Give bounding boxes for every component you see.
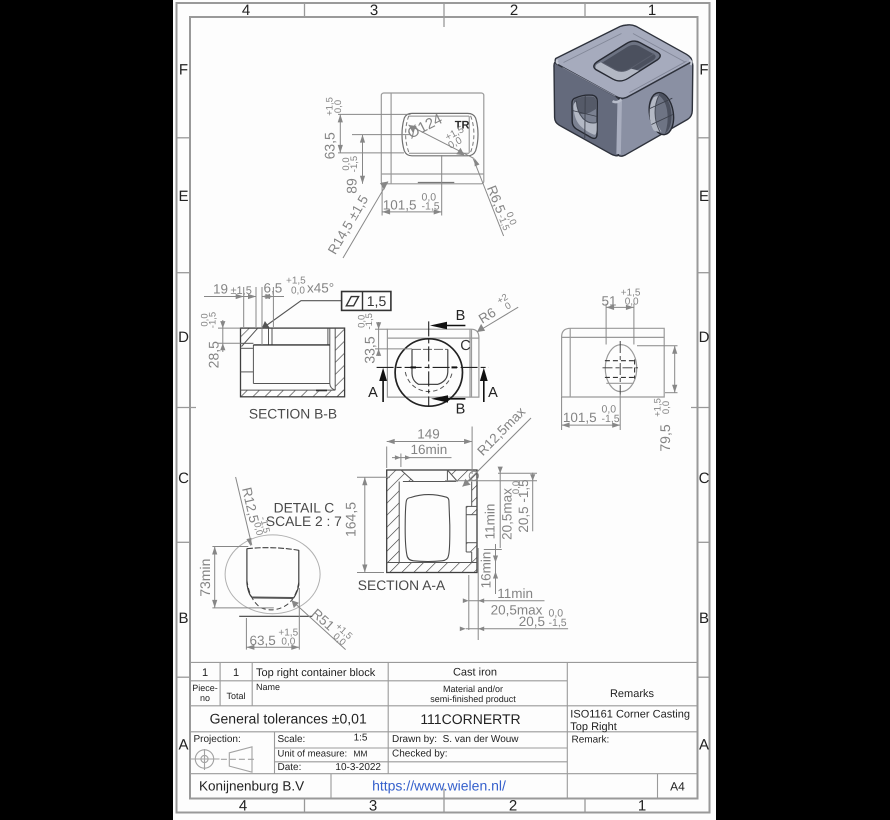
- svg-text:MM: MM: [353, 749, 367, 759]
- svg-text:16min: 16min: [479, 552, 494, 589]
- svg-text:2: 2: [510, 2, 518, 19]
- svg-text:Top right container block: Top right container block: [256, 667, 376, 679]
- svg-text:Scale:: Scale:: [278, 734, 306, 745]
- svg-text:111CORNERTR: 111CORNERTR: [420, 711, 520, 727]
- svg-text:Cast iron: Cast iron: [453, 667, 497, 679]
- svg-text:B: B: [699, 610, 709, 627]
- svg-text:Date:: Date:: [278, 762, 302, 773]
- svg-text:28,5: 28,5: [206, 341, 222, 368]
- svg-text:0,0: 0,0: [422, 191, 437, 203]
- svg-text:D: D: [699, 329, 710, 346]
- svg-text:https://www.wielen.nl/: https://www.wielen.nl/: [372, 778, 506, 794]
- svg-text:A: A: [699, 737, 709, 754]
- svg-text:SECTION A-A: SECTION A-A: [358, 578, 446, 593]
- svg-text:F: F: [179, 62, 188, 79]
- svg-text:Drawn by: S. van der Wouw: Drawn by: S. van der Wouw: [392, 734, 519, 745]
- svg-text:SECTION B-B: SECTION B-B: [249, 407, 337, 422]
- svg-text:E: E: [178, 188, 188, 205]
- svg-text:A: A: [368, 385, 378, 401]
- svg-text:1,5: 1,5: [367, 293, 387, 309]
- svg-text:3: 3: [370, 2, 378, 19]
- svg-text:4: 4: [242, 2, 250, 19]
- svg-text:63,5: 63,5: [250, 633, 276, 648]
- svg-text:Piece-: Piece-: [192, 683, 218, 693]
- svg-text:6,5: 6,5: [264, 281, 283, 296]
- svg-text:Top Right: Top Right: [570, 721, 616, 733]
- svg-text:3: 3: [369, 798, 377, 815]
- svg-text:0,0: 0,0: [333, 100, 344, 113]
- svg-text:Name: Name: [256, 682, 280, 692]
- svg-text:A: A: [488, 385, 498, 401]
- svg-text:Remarks: Remarks: [610, 688, 655, 700]
- svg-text:Unit of measure:: Unit of measure:: [278, 749, 348, 760]
- svg-text:1: 1: [202, 667, 208, 679]
- svg-text:4: 4: [239, 798, 247, 815]
- svg-text:1:5: 1:5: [354, 733, 368, 744]
- svg-text:20,5max: 20,5max: [500, 488, 515, 540]
- svg-text:101,5: 101,5: [563, 410, 597, 425]
- svg-text:B: B: [178, 610, 188, 627]
- svg-text:0,0: 0,0: [661, 401, 672, 414]
- svg-text:E: E: [699, 188, 709, 205]
- svg-text:-1,5: -1,5: [364, 313, 375, 329]
- svg-text:19: 19: [213, 282, 228, 297]
- svg-text:11min: 11min: [497, 586, 533, 601]
- svg-text:1: 1: [233, 667, 239, 679]
- svg-text:±1,5: ±1,5: [231, 285, 252, 297]
- svg-text:149: 149: [417, 426, 440, 441]
- svg-text:A: A: [178, 737, 188, 754]
- svg-text:0,0: 0,0: [281, 637, 295, 648]
- svg-text:0,0: 0,0: [291, 285, 305, 296]
- svg-text:0,0: 0,0: [549, 608, 564, 620]
- svg-text:Konijnenburg B.V: Konijnenburg B.V: [199, 779, 304, 794]
- svg-text:B: B: [456, 402, 466, 418]
- svg-text:C: C: [699, 470, 710, 487]
- svg-text:16min: 16min: [411, 442, 448, 457]
- svg-text:no: no: [200, 693, 210, 703]
- svg-text:101,5: 101,5: [383, 197, 417, 212]
- svg-text:11min: 11min: [483, 504, 498, 540]
- svg-text:79,5: 79,5: [657, 424, 673, 451]
- svg-text:164,5: 164,5: [343, 502, 359, 537]
- svg-text:20,5: 20,5: [519, 614, 545, 629]
- svg-text:Remark:: Remark:: [572, 735, 610, 746]
- svg-text:0,0: 0,0: [511, 481, 522, 494]
- svg-text:Total: Total: [226, 691, 245, 701]
- svg-text:B: B: [456, 308, 466, 324]
- svg-text:-1,5: -1,5: [349, 156, 360, 172]
- svg-text:C: C: [460, 338, 470, 354]
- svg-text:51: 51: [602, 293, 617, 308]
- svg-text:ISO1161 Corner Casting: ISO1161 Corner Casting: [570, 709, 690, 721]
- svg-text:0,0: 0,0: [625, 297, 639, 308]
- svg-text:0,0: 0,0: [602, 404, 617, 416]
- svg-text:Material and/or: Material and/or: [443, 684, 503, 694]
- svg-text:Checked by:: Checked by:: [392, 749, 448, 760]
- svg-text:73min: 73min: [197, 559, 213, 597]
- svg-text:C: C: [178, 470, 189, 487]
- svg-text:General tolerances ±0,01: General tolerances ±0,01: [210, 711, 367, 727]
- svg-text:89: 89: [344, 178, 360, 194]
- svg-text:Projection:: Projection:: [194, 734, 241, 745]
- svg-text:F: F: [699, 62, 708, 79]
- svg-text:-1,5: -1,5: [207, 312, 218, 328]
- svg-text:semi-finished product: semi-finished product: [430, 694, 516, 704]
- svg-text:A4: A4: [670, 780, 685, 794]
- svg-text:1: 1: [638, 798, 646, 815]
- svg-text:10-3-2022: 10-3-2022: [335, 762, 381, 773]
- svg-text:SCALE 2 : 7: SCALE 2 : 7: [266, 514, 342, 529]
- svg-text:33,5: 33,5: [362, 336, 378, 363]
- svg-text:D: D: [178, 329, 189, 346]
- svg-text:x45°: x45°: [307, 281, 334, 296]
- svg-text:63,5: 63,5: [322, 132, 338, 159]
- svg-text:2: 2: [509, 798, 517, 815]
- svg-text:1: 1: [648, 2, 656, 19]
